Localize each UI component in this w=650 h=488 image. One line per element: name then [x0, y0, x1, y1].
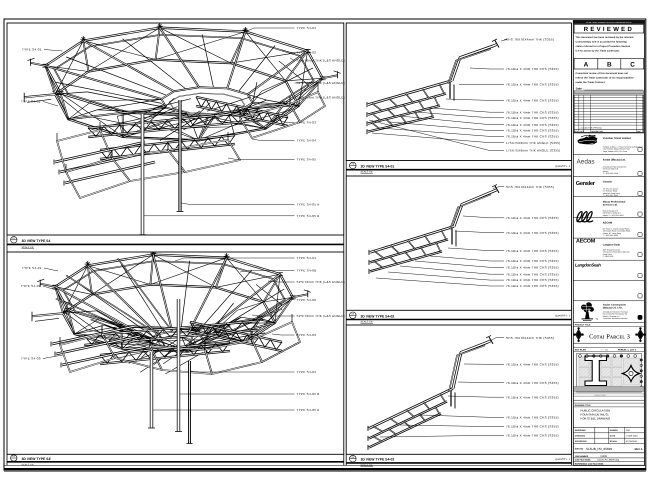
- svg-text:515UB_PD_85699: 515UB_PD_85699: [586, 447, 612, 451]
- svg-text:DESCRIPTION: DESCRIPTION: [591, 130, 603, 133]
- svg-text:-: -: [597, 441, 598, 443]
- svg-text:Aedas: Aedas: [577, 159, 595, 166]
- svg-text:76.1Dia X 4mm THK CHS (S355): 76.1Dia X 4mm THK CHS (S355): [506, 272, 559, 276]
- svg-text:Date :: Date :: [576, 86, 584, 90]
- svg-text:YL: YL: [596, 318, 599, 321]
- svg-text:TYPE S4-02: TYPE S4-02: [21, 100, 41, 104]
- svg-text:DATE: DATE: [610, 435, 616, 438]
- svg-text:1 : 7 500: 1 : 7 500: [601, 348, 608, 351]
- svg-text:SCALE 1/8: SCALE 1/8: [361, 321, 373, 324]
- svg-text:LangdonSeah: LangdonSeah: [575, 263, 601, 268]
- svg-text:SPS/76mm THK (L&S ANGLE): SPS/76mm THK (L&S ANGLE): [297, 280, 346, 284]
- svg-text:76.1Dia X 4mm THK CHS (S355): 76.1Dia X 4mm THK CHS (S355): [506, 433, 559, 437]
- svg-text:76.1Dia X 4mm THK CHS (S355): 76.1Dia X 4mm THK CHS (S355): [506, 249, 559, 253]
- svg-text:APPROVED: APPROVED: [575, 440, 587, 443]
- svg-text:L75X75X6mm THK ANGLE (S355): L75X75X6mm THK ANGLE (S355): [506, 149, 561, 153]
- svg-text:TYPE S4-02: TYPE S4-02: [21, 284, 41, 288]
- svg-text:T + 852 3922 9000: T + 852 3922 9000: [603, 234, 618, 237]
- svg-text:TYPE S4-01: TYPE S4-01: [22, 48, 42, 52]
- svg-text:3D VIEW TYPE S4: 3D VIEW TYPE S4: [22, 239, 51, 243]
- svg-text:76.1Dia X 4mm THK CHS (S355): 76.1Dia X 4mm THK CHS (S355): [506, 284, 559, 288]
- svg-text:SCALE: SCALE: [610, 440, 618, 443]
- svg-text:Langdon Seah: Langdon Seah: [603, 243, 621, 246]
- svg-text:76.1Dia X 4mm THK CHS (S355): 76.1Dia X 4mm THK CHS (S355): [506, 110, 559, 114]
- svg-text:76.1Dia X 4mm THK CHS (S355): 76.1Dia X 4mm THK CHS (S355): [506, 129, 559, 133]
- svg-text:REV A: REV A: [635, 448, 643, 451]
- svg-text:Consultant review of this do: Consultant review of this document does …: [576, 72, 629, 75]
- svg-text:SPS/76mm THK (L&S ANGLE): SPS/76mm THK (L&S ANGLE): [297, 81, 346, 85]
- svg-text:L75X75X6mm THK ANGLE (S355): L75X75X6mm THK ANGLE (S355): [506, 141, 561, 145]
- svg-text:DWG NO: DWG NO: [575, 448, 584, 451]
- svg-text:status referred to in Projec: status referred to in Project Procedure …: [576, 45, 631, 48]
- svg-text:TYPE S4-01: TYPE S4-01: [297, 256, 317, 260]
- svg-text:KEY PLAN: KEY PLAN: [575, 349, 586, 352]
- svg-text:TYPE S4-05: TYPE S4-05: [297, 158, 317, 162]
- svg-text:TYPE S4-02: TYPE S4-02: [297, 51, 317, 55]
- svg-text:SCALE 1/8: SCALE 1/8: [361, 171, 373, 174]
- svg-text:5152B: 5152B: [600, 455, 607, 458]
- svg-text:3D VIEW TYPE S4-03: 3D VIEW TYPE S4-03: [361, 458, 395, 462]
- svg-text:This document has been reviewe: This document has been reviewed by the r…: [576, 36, 634, 39]
- svg-text:Consultant(s) and is accorded: Consultant(s) and is accorded the follow…: [576, 40, 628, 43]
- svg-text:76.1Dia X 4mm THK CHS (S355): 76.1Dia X 4mm THK CHS (S355): [506, 231, 559, 235]
- svg-text:76.1Dia X 4mm THK CHS (S355): 76.1Dia X 4mm THK CHS (S355): [506, 67, 559, 71]
- svg-text:under the Trade Contract.: under the Trade Contract.: [576, 81, 606, 84]
- svg-text:76.1Dia X 4mm THK CHS (S355): 76.1Dia X 4mm THK CHS (S355): [506, 425, 559, 429]
- svg-text:PROJECT TITLE: PROJECT TITLE: [575, 324, 591, 327]
- svg-text:Cᴏᴛᴀɪ Pᴀʀᴄᴇʟ 3: Cᴏᴛᴀɪ Pᴀʀᴄᴇʟ 3: [589, 334, 630, 341]
- svg-text:SCALE 1/8: SCALE 1/8: [22, 463, 34, 466]
- svg-text:QUANTITY : 4: QUANTITY : 4: [555, 315, 570, 318]
- svg-text:QUANTITY : 4: QUANTITY : 4: [555, 165, 570, 168]
- svg-text:relieve the Trade Contractor: relieve the Trade Contractor of its resp…: [576, 76, 635, 79]
- svg-text:DRAWN: DRAWN: [610, 429, 618, 432]
- svg-text:76.1Dia X 4mm THK CHS (S355): 76.1Dia X 4mm THK CHS (S355): [506, 415, 559, 419]
- svg-text:SPS/76mm THK (L&S ANGLE): SPS/76mm THK (L&S ANGLE): [297, 59, 346, 63]
- svg-text:Taipa, Macau SAR, P.R. China: Taipa, Macau SAR, P.R. China: [603, 150, 627, 153]
- svg-text:TYPE S4-05 B: TYPE S4-05 B: [297, 392, 320, 396]
- svg-text:JOB NUMBER: JOB NUMBER: [575, 455, 589, 458]
- svg-text:SHS 76X76X4mm THK (S355): SHS 76X76X4mm THK (S355): [506, 336, 554, 340]
- svg-text:3D VIEW TYPE S4-01: 3D VIEW TYPE S4-01: [361, 165, 395, 169]
- svg-text:FOR STEEL DRAWING: FOR STEEL DRAWING: [581, 417, 611, 421]
- svg-text:76.1Dia X 4mm THK CHS (S355): 76.1Dia X 4mm THK CHS (S355): [506, 99, 559, 103]
- svg-text:TYPE S4-04: TYPE S4-04: [297, 370, 317, 374]
- svg-text:3D VIEW TYPE S4': 3D VIEW TYPE S4': [22, 457, 52, 461]
- svg-text:TYPE S4-01: TYPE S4-01: [22, 266, 42, 270]
- svg-text:CAD: CAD: [626, 429, 631, 432]
- svg-text:AECOM: AECOM: [603, 221, 612, 224]
- svg-text:Services Ltd.: Services Ltd.: [603, 204, 618, 207]
- svg-text:76.1Dia X 4mm THK CHS (S355): 76.1Dia X 4mm THK CHS (S355): [506, 265, 559, 269]
- svg-text:F: 2845 0245: F: 2845 0245: [603, 255, 614, 258]
- svg-text:T + 853 2833 1028: T + 853 2833 1028: [603, 172, 618, 175]
- svg-text:SPS/76mm THK (L&S ANGLE): SPS/76mm THK (L&S ANGLE): [297, 96, 346, 100]
- svg-text:AECOM: AECOM: [576, 239, 596, 245]
- svg-text:△ ISSUED FOR APPROVAL: △ ISSUED FOR APPROVAL: [579, 126, 602, 129]
- svg-text:C: C: [630, 62, 635, 69]
- svg-text:Gensler: Gensler: [576, 180, 596, 187]
- svg-text:Macau T + 853 2878 9921: Macau T + 853 2878 9921: [603, 214, 624, 217]
- svg-text:TYPE S4-03: TYPE S4-03: [21, 357, 41, 361]
- svg-text:REVIEWED: REVIEWED: [584, 26, 634, 33]
- svg-text:7-MAR-2015: 7-MAR-2015: [626, 435, 639, 438]
- svg-text:REFERENCE CAD FILE NAME: REFERENCE CAD FILE NAME: [575, 462, 604, 465]
- svg-text:76.1Dia X 4mm THK CHS (S355): 76.1Dia X 4mm THK CHS (S355): [506, 123, 559, 127]
- svg-text:PARCEL 1, LOT 2: PARCEL 1, LOT 2: [618, 349, 637, 352]
- svg-text:TYPE S4-03: TYPE S4-03: [297, 333, 317, 337]
- svg-text:TYPE S4-0B: TYPE S4-0B: [297, 269, 317, 273]
- svg-text:76.1Dia X 4mm THK CHS (S355): 76.1Dia X 4mm THK CHS (S355): [506, 83, 559, 87]
- svg-text:TYPE S4-02: TYPE S4-02: [297, 298, 317, 302]
- svg-text:SHS 76X76X4mm THK (S355): SHS 76X76X4mm THK (S355): [506, 38, 554, 42]
- svg-text:A: A: [584, 62, 589, 69]
- svg-text:TYPE S4-01: TYPE S4-01: [297, 26, 317, 30]
- svg-text:(Macau) CO. LTD.: (Macau) CO. LTD.: [603, 307, 623, 310]
- svg-text:COTAI STRIP: COTAI STRIP: [594, 394, 606, 397]
- svg-text:DESIGNED: DESIGNED: [575, 429, 586, 432]
- svg-text:Gensler: Gensler: [603, 180, 612, 183]
- svg-text:05: 05: [352, 456, 355, 459]
- svg-text:76.1Dia X 4mm THK CHS (S355): 76.1Dia X 4mm THK CHS (S355): [506, 135, 559, 139]
- svg-text:TYPE S4-05 A: TYPE S4-05 A: [297, 203, 320, 207]
- svg-text:76.1Dia X 4mm THK CHS (S355): 76.1Dia X 4mm THK CHS (S355): [506, 259, 559, 263]
- svg-text:B: B: [607, 62, 612, 69]
- svg-text:76.1Dia X 4mm THK CHS (S355): 76.1Dia X 4mm THK CHS (S355): [506, 381, 559, 385]
- svg-text:CHECKED: CHECKED: [575, 435, 586, 438]
- svg-text:Contractor: assinatura carimbo: Contractor: assinatura carimbo: [603, 317, 628, 320]
- svg-text:TYPE S4-03: TYPE S4-03: [297, 121, 317, 125]
- svg-text:SHS 76X76X4mm THK (S355): SHS 76X76X4mm THK (S355): [506, 185, 554, 189]
- svg-text:76.1Dia X 4mm THK CHS (S355): 76.1Dia X 4mm THK CHS (S355): [506, 116, 559, 120]
- svg-text:76.1Dia X 4mm THK CHS (S355): 76.1Dia X 4mm THK CHS (S355): [506, 278, 559, 282]
- svg-text:5.4 for action by the Trade Co: 5.4 for action by the Trade Contractor.: [576, 50, 621, 53]
- svg-text:Venetian Orient Limited: Venetian Orient Limited: [603, 137, 631, 140]
- svg-text:TYPE S4-05 B: TYPE S4-05 B: [297, 214, 320, 218]
- svg-text:76.1Dia X 4mm THK CHS (S355): 76.1Dia X 4mm THK CHS (S355): [506, 216, 559, 220]
- svg-text:3D VIEW TYPE S4-02: 3D VIEW TYPE S4-02: [361, 314, 395, 318]
- svg-text:TYPE S4-05 A: TYPE S4-05 A: [297, 408, 320, 412]
- svg-text:-: -: [597, 436, 598, 438]
- svg-text:Aedas (Macau) Ltd.: Aedas (Macau) Ltd.: [603, 158, 626, 161]
- svg-text:AS SHOWN: AS SHOWN: [626, 440, 638, 443]
- svg-text:76.1Dia X 4mm THK CHS (S355): 76.1Dia X 4mm THK CHS (S355): [506, 395, 559, 399]
- svg-text:QUANTITY : 4: QUANTITY : 4: [555, 458, 570, 461]
- svg-text:76.1Dia X 4mm THK CHS (S355): 76.1Dia X 4mm THK CHS (S355): [506, 362, 559, 366]
- svg-text:SCALE 1/8: SCALE 1/8: [22, 246, 34, 249]
- svg-text:515UB_PD_85699.dwg: 515UB_PD_85699.dwg: [597, 459, 620, 462]
- svg-text:SPS/76mm THK (L&S ANGLE): SPS/76mm THK (L&S ANGLE): [297, 314, 346, 318]
- svg-text:CAD FILE NAME: CAD FILE NAME: [575, 459, 591, 462]
- svg-text:TYPE S4-04: TYPE S4-04: [297, 139, 317, 143]
